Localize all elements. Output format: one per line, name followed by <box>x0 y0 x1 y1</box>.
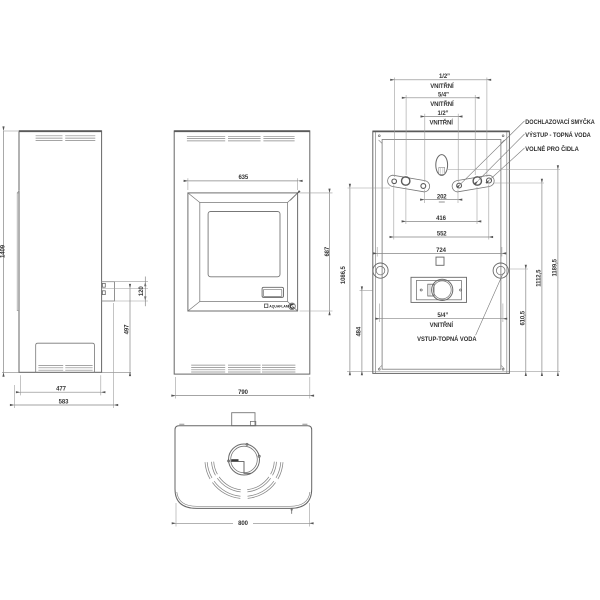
svg-text:VOLNÉ PRO ČIDLA: VOLNÉ PRO ČIDLA <box>525 145 579 153</box>
svg-text:1/2”: 1/2” <box>438 111 449 117</box>
svg-text:635: 635 <box>238 175 248 181</box>
svg-text:477: 477 <box>56 387 66 393</box>
svg-text:484: 484 <box>356 326 362 336</box>
svg-text:VNITŘNÍ: VNITŘNÍ <box>430 82 454 90</box>
svg-text:800: 800 <box>238 521 248 527</box>
svg-text:202: 202 <box>437 195 447 201</box>
svg-text:VÝSTUP - TOPNÁ VODA: VÝSTUP - TOPNÁ VODA <box>525 132 591 139</box>
svg-text:VNITŘNÍ: VNITŘNÍ <box>430 321 454 329</box>
svg-text:1086,5: 1086,5 <box>341 266 347 285</box>
svg-text:497: 497 <box>124 324 130 334</box>
svg-text:1189,5: 1189,5 <box>553 258 559 276</box>
svg-text:1112,5: 1112,5 <box>537 269 543 287</box>
svg-text:687: 687 <box>325 246 331 256</box>
svg-text:552: 552 <box>437 232 447 238</box>
svg-text:120: 120 <box>139 286 145 296</box>
svg-text:1409: 1409 <box>1 244 7 258</box>
svg-text:VSTUP-TOPNÁ VODA: VSTUP-TOPNÁ VODA <box>417 336 477 343</box>
svg-text:5/4”: 5/4” <box>438 93 449 99</box>
svg-text:VNITŘNÍ: VNITŘNÍ <box>430 100 454 108</box>
svg-text:790: 790 <box>238 390 248 396</box>
svg-text:583: 583 <box>59 399 69 405</box>
svg-text:724: 724 <box>436 248 446 254</box>
svg-text:DOCHLAZOVACÍ SMYČKA: DOCHLAZOVACÍ SMYČKA <box>525 118 595 126</box>
svg-text:AQUAFLAM: AQUAFLAM <box>269 305 289 309</box>
svg-text:5/4”: 5/4” <box>437 313 448 319</box>
svg-text:416: 416 <box>436 216 446 222</box>
svg-text:VNITŘNÍ: VNITŘNÍ <box>430 119 454 127</box>
svg-text:1/2”: 1/2” <box>439 74 450 80</box>
svg-text:610,5: 610,5 <box>521 310 527 325</box>
